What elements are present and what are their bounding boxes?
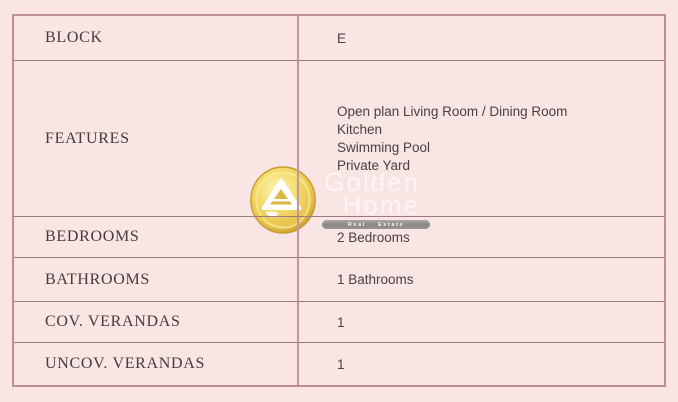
- block-label: BLOCK: [45, 29, 103, 47]
- bedrooms-label: BEDROOMS: [45, 228, 140, 246]
- uncov-verandas-value: 1: [337, 357, 345, 372]
- row-features-label: FEATURES: [14, 60, 297, 216]
- feature-item: Swimming Pool: [337, 139, 430, 157]
- feature-item: Kitchen: [337, 121, 382, 139]
- uncov-verandas-label: UNCOV. VERANDAS: [45, 355, 205, 373]
- property-details-sheet: Golden Home Real Estate BLOCK E FEATURES…: [0, 0, 678, 402]
- row-bedrooms-value: 2 Bedrooms: [297, 216, 664, 257]
- bathrooms-value: 1 Bathrooms: [337, 272, 414, 287]
- row-block-value: E: [297, 16, 664, 60]
- row-cov-verandas-value: 1: [297, 301, 664, 342]
- row-cov-verandas-label: COV. VERANDAS: [14, 301, 297, 342]
- row-features-value: Open plan Living Room / Dining Room Kitc…: [297, 60, 664, 216]
- cov-verandas-label: COV. VERANDAS: [45, 313, 181, 331]
- block-value: E: [337, 31, 346, 46]
- cov-verandas-value: 1: [337, 315, 345, 330]
- row-bathrooms-value: 1 Bathrooms: [297, 257, 664, 301]
- bathrooms-label: BATHROOMS: [45, 271, 150, 289]
- property-details-table: BLOCK E FEATURES Open plan Living Room /…: [12, 14, 666, 387]
- row-bedrooms-label: BEDROOMS: [14, 216, 297, 257]
- row-block-label: BLOCK: [14, 16, 297, 60]
- row-bathrooms-label: BATHROOMS: [14, 257, 297, 301]
- features-label: FEATURES: [45, 130, 130, 148]
- feature-item: Open plan Living Room / Dining Room: [337, 103, 567, 121]
- feature-item: Private Yard: [337, 157, 410, 175]
- row-uncov-verandas-label: UNCOV. VERANDAS: [14, 342, 297, 385]
- bedrooms-value: 2 Bedrooms: [337, 230, 410, 245]
- row-uncov-verandas-value: 1: [297, 342, 664, 385]
